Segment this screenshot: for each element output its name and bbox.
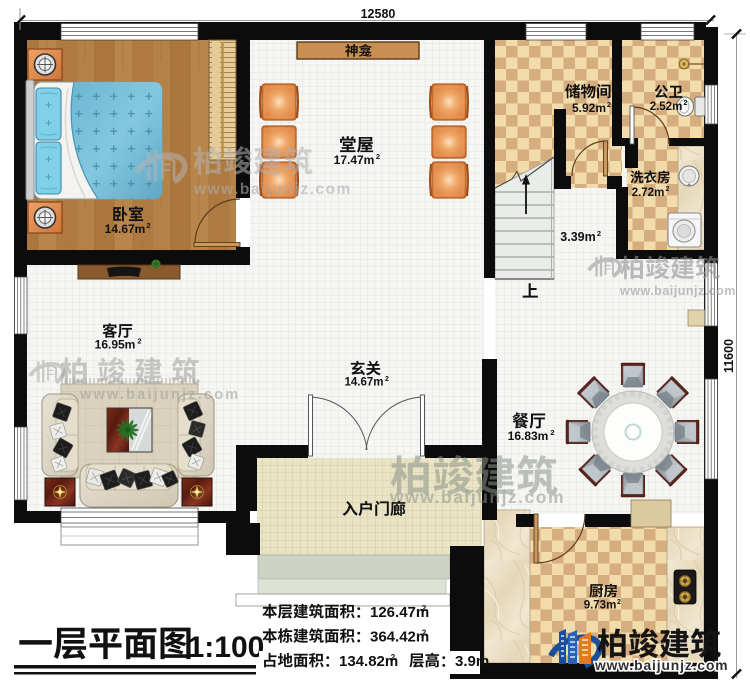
svg-text:：364.42m: ：364.42m xyxy=(355,629,429,646)
svg-text:2: 2 xyxy=(617,599,621,606)
svg-text:www.baijunjz.com: www.baijunjz.com xyxy=(389,487,565,507)
svg-text:www.baijunjz.com: www.baijunjz.com xyxy=(619,284,736,298)
svg-text:3.39m: 3.39m xyxy=(560,230,595,244)
svg-text:2: 2 xyxy=(684,100,688,107)
svg-text:2: 2 xyxy=(607,100,611,109)
svg-text:2: 2 xyxy=(376,152,380,161)
svg-text:：3.9m: ：3.9m xyxy=(440,653,489,670)
svg-text:16.95m: 16.95m xyxy=(95,338,136,352)
svg-text:2: 2 xyxy=(666,186,670,193)
svg-text:：134.82m: ：134.82m xyxy=(324,653,398,670)
svg-text:2: 2 xyxy=(137,337,141,346)
svg-text:：126.47m: ：126.47m xyxy=(355,604,429,621)
svg-text:www.baijunjz.com: www.baijunjz.com xyxy=(193,181,352,198)
svg-text:2: 2 xyxy=(422,629,427,638)
svg-text:16.83m: 16.83m xyxy=(508,429,549,443)
svg-text:2: 2 xyxy=(422,604,427,613)
svg-text:2.52m: 2.52m xyxy=(650,101,683,113)
svg-text:www.baijunjz.com: www.baijunjz.com xyxy=(594,658,728,673)
svg-text:2: 2 xyxy=(597,229,601,238)
svg-text:9.73m: 9.73m xyxy=(584,600,617,612)
svg-text:2.72m: 2.72m xyxy=(632,187,665,199)
svg-text:11600: 11600 xyxy=(722,339,736,373)
svg-text:1:100: 1:100 xyxy=(188,631,265,664)
svg-text:14.67m: 14.67m xyxy=(344,377,383,389)
svg-text:2: 2 xyxy=(146,221,150,230)
svg-text:17.47m: 17.47m xyxy=(334,153,375,167)
svg-text:14.67m: 14.67m xyxy=(105,222,146,236)
svg-text:www.baijunjz.com: www.baijunjz.com xyxy=(79,387,240,403)
svg-text:5.92m: 5.92m xyxy=(572,101,606,115)
svg-text:2: 2 xyxy=(391,653,396,662)
svg-text:2: 2 xyxy=(385,376,389,383)
svg-text:2: 2 xyxy=(550,428,554,437)
svg-text:12580: 12580 xyxy=(361,7,396,21)
